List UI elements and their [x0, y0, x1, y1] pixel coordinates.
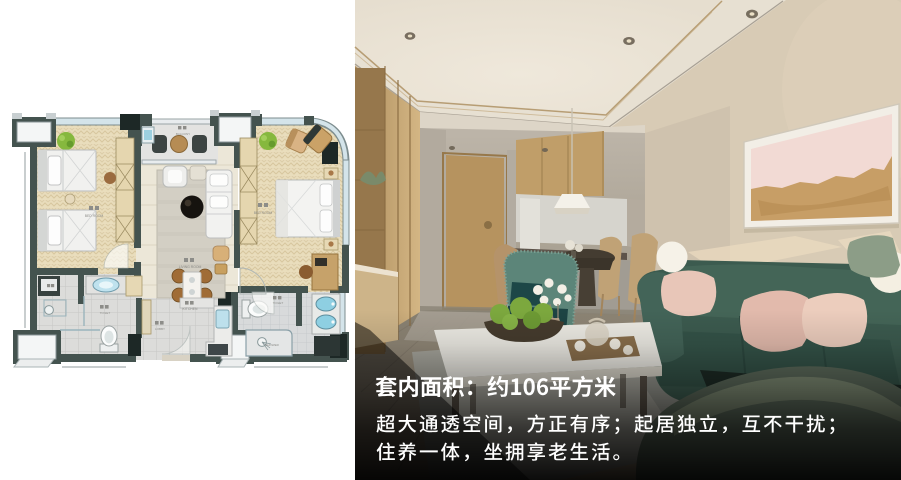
svg-text:BED ROOM: BED ROOM: [85, 214, 104, 218]
svg-text:KITCHEN: KITCHEN: [183, 307, 198, 311]
svg-text:LOBBY: LOBBY: [155, 327, 165, 331]
svg-text:BED ROOM: BED ROOM: [254, 211, 273, 215]
svg-text:TOILET: TOILET: [100, 311, 111, 315]
svg-text:SHOWER: SHOWER: [265, 343, 279, 347]
svg-text:TOILET: TOILET: [273, 301, 284, 305]
svg-text:LIVING ROOM: LIVING ROOM: [179, 265, 202, 269]
svg-text:BALCONY: BALCONY: [176, 132, 190, 136]
